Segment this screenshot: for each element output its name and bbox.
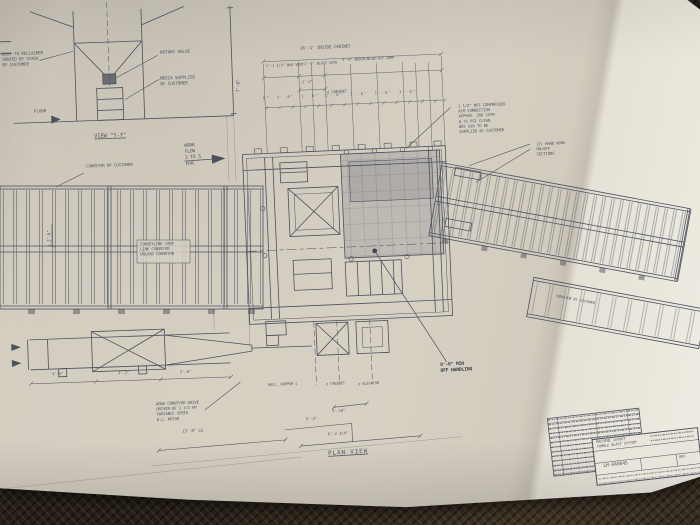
sub-dim-2-2: 2'-2"	[302, 80, 313, 85]
work-flow-label: WORK FLOW 3 TO 5 FPM	[184, 142, 202, 167]
dim-5-2: 5'-2"	[306, 416, 317, 422]
blast-cabinet	[241, 104, 541, 388]
elev-dim-1: 4'-6"	[52, 372, 63, 377]
conveyor-feet	[28, 309, 255, 314]
reclaim-note: DUST TO RECLAIMER VENTED BY STACK BY CUS…	[2, 51, 44, 69]
pen-annotation: 8'-0" MIN OFF HANDLING	[440, 360, 472, 374]
media-note: MEDIA SUPPLIED BY CUSTOMER	[160, 75, 195, 88]
left-conveyor-width-dim: 2'-6"	[47, 230, 52, 242]
view-yy-label: VIEW "Y-Y"	[94, 132, 126, 141]
rotary-valve-label: ROTARY VALVE	[160, 49, 190, 56]
drive-note: WORK CONVEYOR DRIVE DRIVEN BY 1 1/2 HP V…	[156, 400, 200, 423]
photo-of-blueprint: DUST TO RECLAIMER VENTED BY STACK BY CUS…	[0, 0, 700, 525]
elev-dim-2: 3'-2"	[118, 371, 129, 376]
elev-dim-3: 2'-0"	[180, 370, 191, 375]
left-conveyor	[0, 173, 263, 314]
section-arrow-2	[12, 360, 20, 366]
elevator-box	[356, 320, 389, 353]
conveyor-length-dim: 13'-0" LG	[182, 428, 203, 434]
right-conveyor	[417, 163, 700, 349]
rotary-valve-shape	[103, 74, 116, 84]
bottom-dimension-lines	[0, 371, 464, 489]
cl-cabinet-bottom: ¢ CABINET	[326, 381, 345, 387]
section-arrow-1	[12, 344, 20, 350]
dim-3-10: 3'-10"	[332, 408, 345, 414]
conveyline-note: CONVEYLINE CORP. LINK CONVEYOR UNLOAD CO…	[140, 241, 176, 257]
height-dim-line	[227, 6, 237, 116]
media-drum-shape	[97, 88, 124, 121]
hand-work-note: (2) HAND WORK ON/OFF SECTIONS	[536, 141, 566, 158]
height-dim-text: 7'-6"	[236, 80, 242, 92]
floor-label: FLOOR	[34, 109, 46, 115]
detail-view-hopper	[0, 0, 239, 190]
dim-6-2-34: 6'-2 3/4"	[328, 431, 348, 437]
blueprint-linework	[0, 0, 700, 525]
compressed-air-note: 1 1/2" NPT COMPRESSED AIR CONNECTION APP…	[458, 102, 507, 135]
rev-label: REV	[679, 454, 686, 459]
